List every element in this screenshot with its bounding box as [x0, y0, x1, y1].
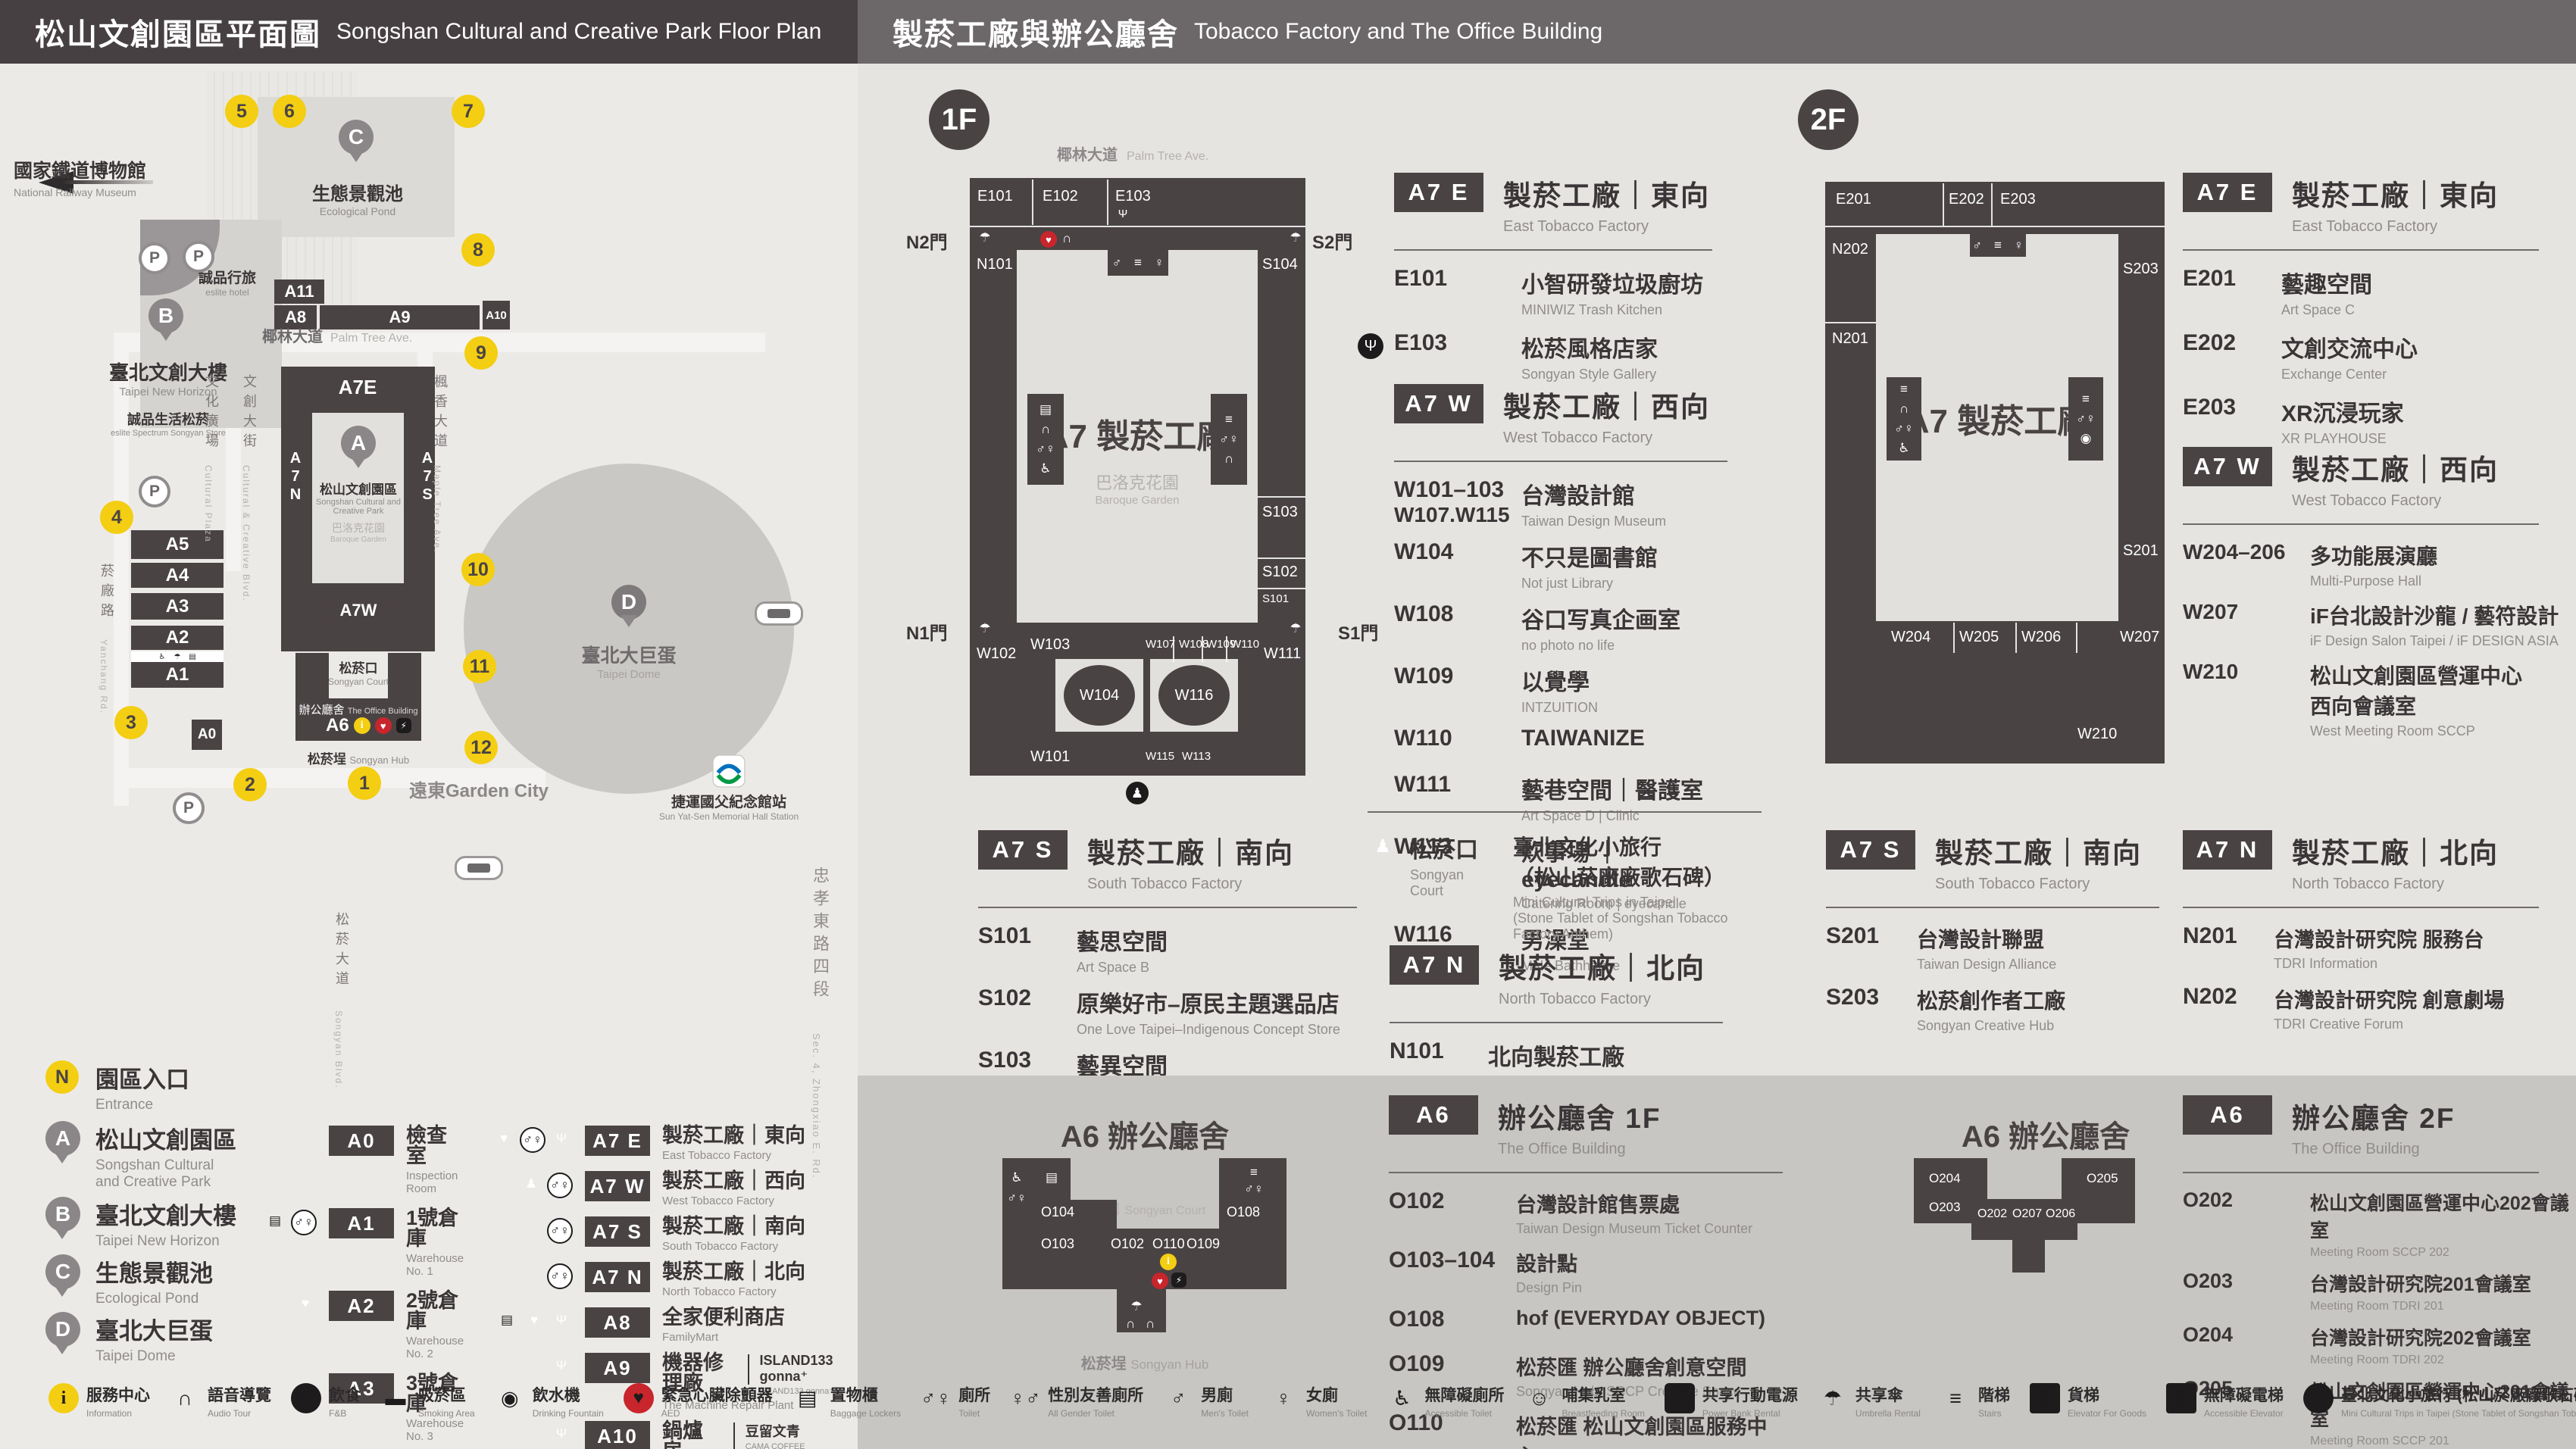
umbrella-icon — [1288, 621, 1303, 636]
room-s103: S103 — [1262, 504, 1298, 521]
section-badge: A6 — [1389, 1095, 1478, 1135]
facility-icon — [520, 1173, 542, 1195]
gate-n2: N2門 — [906, 227, 948, 254]
facility-icon — [921, 1383, 951, 1413]
trips-icon — [1126, 782, 1149, 804]
facility-icon — [1387, 1383, 1418, 1413]
facility-block-west — [1027, 394, 1064, 485]
parking-icon: P — [139, 242, 170, 274]
mrt-station-label: 捷運國父紀念館站 Sun Yat-Sen Memorial Hall Stati… — [659, 791, 799, 822]
section-badge: A7 W — [1394, 384, 1483, 423]
facility-icon — [1268, 1383, 1299, 1413]
room-w102: W102 — [977, 645, 1016, 663]
bldg-a4: A4 — [131, 563, 224, 588]
facility-legend-item: 吸菸區Smoking Area — [380, 1383, 475, 1419]
legend-item: A1 1號倉庫Warehouse No. 1 — [217, 1208, 467, 1278]
room-w205: W205 — [1959, 629, 1999, 646]
facility-icon — [547, 1218, 573, 1244]
room-o206: O206 — [2046, 1207, 2075, 1221]
room-s201: S201 — [2123, 542, 2159, 560]
building-code-badge: A10 — [585, 1421, 650, 1449]
legend-item: A10 鍋爐房 豆留文青CAMA COFFEE ROASTERS Boiler … — [473, 1421, 852, 1449]
pond-label: 生態景觀池 Ecological Pond — [312, 179, 403, 217]
facility-icon — [550, 1354, 573, 1377]
facility-legend-item: 服務中心Information — [48, 1383, 150, 1419]
a6-right-arm — [388, 653, 421, 698]
facility-icon — [1163, 1383, 1193, 1413]
aed-icon — [375, 717, 392, 734]
stairs-icon — [1246, 1165, 1261, 1180]
room-list-item: W101–103W107.W115 台灣設計館Taiwan Design Mus… — [1394, 477, 1727, 529]
plan-1f-center: A7 製菸工廠 巴洛克花園 Baroque Garden — [1045, 409, 1230, 507]
garden-city-label: 遠東Garden City — [409, 776, 549, 802]
room-w210: W210 — [2077, 726, 2117, 743]
floor-badge-1f: 1F — [929, 89, 989, 150]
section-a7e-2f: A7 E 製菸工廠｜東向East Tobacco Factory E201 藝趣… — [2183, 173, 2562, 459]
facility-icon — [291, 1383, 321, 1413]
facility-icon — [792, 1383, 823, 1413]
room-o205: O205 — [2087, 1171, 2118, 1186]
gate-notch-2f — [1970, 234, 2026, 257]
page-title-zh: 松山文創園區平面圖 — [35, 10, 321, 54]
audio-icon — [1059, 231, 1074, 246]
audio-icon — [1143, 1316, 1158, 1332]
room-list-item: S101 藝思空間Art Space B — [978, 923, 1357, 976]
room-list-item: W109 以覺學INTZUITION — [1394, 664, 1727, 716]
facility-icon — [170, 1383, 200, 1413]
room-o103: O103 — [1041, 1236, 1074, 1252]
fountain-icon — [2078, 431, 2093, 446]
room-list-item: W110 TAIWANIZE — [1394, 726, 1727, 762]
facility-icon — [380, 1383, 411, 1413]
power-bank-icon — [1171, 1273, 1186, 1288]
street-zhongxiao: 忠孝東路四段 — [808, 867, 832, 1003]
facility-icon — [1940, 1383, 1971, 1413]
room-o204: O204 — [1929, 1171, 1961, 1186]
room-o102: O102 — [1111, 1236, 1144, 1252]
facility-icon — [291, 1210, 317, 1235]
room-list-item: O103–104 設計點Design Pin — [1389, 1248, 1783, 1296]
bldg-a10: A10 — [483, 301, 510, 329]
entrance-3: 3 — [114, 706, 148, 739]
room-list-item: E103 松菸風格店家Songyan Style Gallery — [1394, 330, 1712, 383]
facility-icon — [550, 1422, 573, 1445]
page-title-en: Songshan Cultural and Creative Park Floo… — [336, 19, 821, 45]
dome-label: 臺北大巨蛋 Taipei Dome — [581, 641, 676, 681]
facility-legend-item: 語音導覽Audio Tour — [170, 1383, 271, 1419]
room-o202: O202 — [1977, 1207, 2007, 1221]
room-list-item: N202 台灣設計研究院 創意劇場TDRI Creative Forum — [2183, 984, 2576, 1032]
room-list-item: E202 文創交流中心Exchange Center — [2183, 330, 2562, 383]
street-plaza: 文化廣場 — [202, 374, 221, 453]
room-w115: W115 — [1146, 750, 1174, 763]
palm-ave-label-1f: 椰林大道 Palm Tree Ave. — [1057, 142, 1208, 164]
railway-museum-label: 國家鐵道博物館 National Railway Museum — [14, 156, 146, 198]
stairs-icon — [1990, 238, 2005, 253]
legend-pin-d: D 臺北大巨蛋Taipei Dome — [45, 1312, 213, 1365]
building-code-badge: A8 — [585, 1307, 650, 1338]
fnb-icon — [1115, 206, 1130, 221]
entrance-10: 10 — [461, 553, 495, 586]
men-icon — [1970, 238, 1984, 253]
header-right: 製菸工廠與辦公廳舍 Tobacco Factory and The Office… — [858, 0, 2576, 64]
facility-legend: 服務中心Information 語音導覽Audio Tour 飲食F&B 吸菸區… — [48, 1383, 2576, 1419]
building-code-badge: A9 — [585, 1353, 650, 1383]
room-w108: W108 — [1179, 638, 1208, 651]
toilet-icon — [2078, 411, 2093, 426]
section-a7n-2f: A7 N 製菸工廠｜北向North Tobacco Factory N201 台… — [2183, 830, 2576, 1045]
room-list-item: E101 小智研發垃圾廚坊MINIWIZ Trash Kitchen — [1394, 266, 1712, 318]
room-list-item: E203 XR沉浸玩家XR PLAYHOUSE — [2183, 395, 2562, 447]
accessible-icon — [158, 652, 167, 661]
room-o207: O207 — [2012, 1207, 2042, 1221]
building-code-badge: A1 — [329, 1208, 394, 1238]
stairs-icon — [2078, 392, 2093, 407]
facility-icon — [520, 1127, 546, 1153]
room-list-item: W207 iF台北設計沙龍 / 藝符設計iF Design Salon Taip… — [2183, 600, 2562, 649]
pin-a: A — [341, 426, 376, 461]
umbrella-icon — [977, 230, 993, 245]
toilet-icon — [1246, 1182, 1261, 1197]
facility-icon — [264, 1210, 286, 1232]
facility-icon — [495, 1383, 525, 1413]
bldg-a1: A1 — [131, 662, 224, 688]
a6-hub-label: 松菸埕 Songyan Hub — [1081, 1351, 1209, 1373]
room-list-item: O102 台灣設計館售票處Taiwan Design Museum Ticket… — [1389, 1188, 1783, 1237]
room-s101: S101 — [1262, 592, 1289, 605]
bldg-a7w-label: A7W — [322, 594, 395, 627]
toilet-icon — [1221, 432, 1236, 447]
park-map-panel: 國家鐵道博物館 National Railway Museum C 生態景觀池 … — [0, 64, 858, 1449]
bldg-a0: A0 — [192, 720, 222, 750]
parking-icon: P — [139, 476, 170, 507]
room-w107: W107 — [1146, 638, 1175, 651]
facility-icon — [547, 1263, 573, 1289]
street-yanchang: 菸廠路 — [97, 564, 117, 623]
street-songyan-blvd: 松菸大道 — [332, 912, 352, 991]
section-badge: A7 S — [1826, 830, 1915, 870]
section-badge: A7 E — [1394, 173, 1483, 212]
section-badge: A7 N — [2183, 830, 2272, 870]
floor-plan-poster: 松山文創園區平面圖 Songshan Cultural and Creative… — [0, 0, 2576, 1449]
facility-icon — [1818, 1383, 1848, 1413]
pin-b: B — [148, 298, 183, 333]
locker-icon — [1044, 1170, 1059, 1185]
room-w104: W104 — [1064, 665, 1135, 726]
bus-stop-icon — [455, 856, 503, 880]
accessible-icon — [1038, 461, 1053, 476]
gate-notch — [1108, 250, 1168, 276]
stairs-icon — [1896, 382, 1912, 397]
facility-icon — [523, 1309, 546, 1332]
room-o110: O110 — [1152, 1236, 1185, 1252]
section-a7w-2f: A7 W 製菸工廠｜西向West Tobacco Factory W204–20… — [2183, 447, 2562, 750]
umbrella-icon — [173, 652, 182, 661]
building-code-badge: A0 — [329, 1126, 394, 1156]
room-w111: W111 — [1264, 645, 1301, 663]
floor-badge-2f: 2F — [1798, 89, 1859, 150]
accessible-icon — [1009, 1170, 1024, 1185]
facility-icon — [547, 1173, 573, 1198]
facility-block-2f-east — [2068, 377, 2103, 461]
section-badge: A7 E — [2183, 173, 2272, 212]
bldg-a6-label: A6 — [326, 715, 349, 736]
room-list-item: O204 台灣設計研究院202會議室 Meeting Room TDRI 202 — [2183, 1323, 2576, 1367]
section-a7e-1f: A7 E 製菸工廠｜東向East Tobacco Factory E101 小智… — [1394, 173, 1712, 395]
stairs-icon — [1221, 412, 1236, 427]
locker-icon — [188, 652, 197, 661]
room-list-item: O202 松山文創園區營運中心202會議室 Meeting Room SCCP … — [2183, 1188, 2576, 1260]
facility-icon — [2030, 1383, 2060, 1413]
info-icon — [1160, 1254, 1177, 1270]
men-icon — [1109, 255, 1124, 270]
facility-icon — [1010, 1383, 1040, 1413]
toilet-icon — [1009, 1191, 1024, 1206]
park-name-label: 松山文創園區 Songshan Cultural and Creative Pa… — [316, 479, 401, 544]
songyan-hub-label: 松菸埕 Songyan Hub — [308, 748, 409, 767]
facility-legend-item: 性別友善廁所All Gender Toilet — [1010, 1383, 1143, 1419]
facility-legend-item: 貨梯Elevator For Goods — [2030, 1383, 2146, 1419]
entrance-9: 9 — [464, 336, 498, 370]
toilet-icon — [1038, 442, 1053, 457]
entrance-6: 6 — [273, 95, 306, 128]
section-badge: A6 — [2183, 1095, 2272, 1135]
legend-item: A2 2號倉庫Warehouse No. 2 — [217, 1291, 467, 1360]
section-badge: A7 N — [1390, 945, 1479, 985]
entrance-11: 11 — [463, 650, 496, 683]
facility-legend-item: 無障礙電梯Accessible Elevator — [2166, 1383, 2284, 1419]
legend-item: A0 檢查室Inspection Room — [217, 1126, 467, 1195]
section-title-zh: 製菸工廠與辦公廳舍 — [893, 10, 1179, 54]
room-e201: E201 — [1836, 191, 1871, 208]
bldg-a2: A2 — [131, 626, 224, 650]
section-badge: A7 W — [2183, 447, 2272, 486]
aed-icon — [1152, 1273, 1168, 1289]
a6-2f-stub — [2012, 1240, 2045, 1273]
bldg-a11: A11 — [274, 279, 324, 304]
facility-icon — [550, 1127, 573, 1150]
room-e203: E203 — [2000, 191, 2036, 208]
building-code-badge: A2 — [329, 1291, 394, 1321]
facility-icon — [48, 1383, 79, 1413]
facility-legend-item: 緊急心臟除顫器AED — [624, 1383, 773, 1419]
bldg-a3: A3 — [131, 593, 224, 620]
trips-icon — [1368, 831, 1398, 861]
gate-n1: N1門 — [906, 618, 948, 645]
room-e102: E102 — [1043, 188, 1078, 205]
songyan-court-note: 松菸口 Songyan Court 臺北文化小旅行 （松山菸廠廠歌石碑） Min… — [1368, 811, 1762, 942]
plan-2f-center: A7 製菸工廠 — [1905, 394, 2090, 442]
songyan-court-label: 松菸口 Songyan Court — [328, 657, 389, 687]
facility-legend-item: 廁所Toilet — [921, 1383, 990, 1419]
facility-icon — [1524, 1383, 1555, 1413]
info-icon — [354, 717, 370, 734]
room-list-item: E201 藝趣空間Art Space C — [2183, 266, 2562, 318]
room-list-item: O108 hof (EVERYDAY OBJECT) — [1389, 1307, 1783, 1341]
building-code-badge: A7 E — [585, 1126, 650, 1156]
section-title-en: Tobacco Factory and The Office Building — [1194, 19, 1602, 45]
a6-map-title-2f: A6 辦公廳舍 — [1962, 1112, 2130, 1156]
room-n201: N201 — [1832, 330, 1868, 348]
audio-icon — [1123, 1316, 1138, 1332]
building-code-badge: A7 W — [585, 1171, 650, 1201]
room-w110: W110 — [1230, 638, 1259, 651]
audio-icon — [1221, 451, 1236, 467]
facility-block-east — [1211, 394, 1247, 485]
room-list-item: W210 松山文創園區營運中心西向會議室West Meeting Room SC… — [2183, 660, 2562, 739]
facility-legend-item: 哺集乳室Breastfeeding Room — [1524, 1383, 1645, 1419]
facility-legend-item: 臺北文化小旅行 (松山菸廠廠歌石碑)Mini Cultural Trips in… — [2303, 1383, 2576, 1419]
accessible-icon — [1896, 441, 1912, 456]
umbrella-icon — [977, 621, 993, 636]
pin-c: C — [339, 120, 374, 155]
room-w207: W207 — [2120, 629, 2159, 646]
power-bank-icon — [396, 718, 411, 733]
entrance-2: 2 — [233, 768, 267, 801]
parking-icon: P — [183, 241, 214, 273]
stairs-icon — [1130, 255, 1146, 270]
room-list-item: O203 台灣設計研究院201會議室 Meeting Room TDRI 201 — [2183, 1269, 2576, 1313]
facility-block-2f-west — [1887, 377, 1921, 461]
locker-icon — [1038, 402, 1053, 417]
entrance-7: 7 — [452, 95, 485, 128]
legend-item: A7 W 製菸工廠｜西向 West Tobacco Factory — [473, 1171, 852, 1207]
room-s104: S104 — [1262, 256, 1298, 273]
room-o104: O104 — [1041, 1204, 1074, 1220]
room-e103: E103 — [1115, 188, 1151, 205]
facility-icon — [496, 1309, 518, 1332]
audio-icon — [1896, 401, 1912, 417]
facility-icon — [294, 1292, 317, 1315]
room-o108: O108 — [1227, 1204, 1260, 1220]
street-ccblvd: 文創大街 — [239, 374, 259, 453]
street-maple: 楓香大道 — [430, 374, 450, 453]
facility-icon — [624, 1383, 654, 1413]
facility-legend-item: 飲食F&B — [291, 1383, 361, 1419]
entrance-4: 4 — [100, 501, 133, 534]
legend-item: A8 全家便利商店 FamilyMart — [473, 1307, 852, 1344]
gate-s2: S2門 — [1312, 227, 1352, 254]
a6-map-title-1f: A6 辦公廳舍 — [1061, 1112, 1229, 1156]
palm-ave-label: 椰林大道 Palm Tree Ave. — [262, 324, 412, 346]
facility-icon — [2303, 1383, 2334, 1413]
facility-legend-item: 女廁Women's Toilet — [1268, 1383, 1368, 1419]
legend-pin-c: C 生態景觀池Ecological Pond — [45, 1254, 213, 1307]
a6-left-arm — [295, 653, 329, 698]
bldg-a7e-label: A7E — [339, 376, 377, 399]
toilet-icon — [1896, 421, 1912, 436]
room-list-item: S203 松菸創作者工廠Songyan Creative Hub — [1826, 985, 2159, 1034]
entrance-1: 1 — [348, 767, 381, 800]
entrance-5: 5 — [225, 95, 258, 128]
a1-icon-strip — [131, 651, 224, 662]
facility-legend-item: 共享行動電源Power Bank Rental — [1665, 1383, 1798, 1419]
gate-s1: S1門 — [1338, 618, 1378, 645]
legend-item: A7 S 製菸工廠｜南向 South Tobacco Factory — [473, 1216, 852, 1253]
room-w204: W204 — [1891, 629, 1930, 646]
entrance-8: 8 — [461, 233, 495, 267]
facility-legend-item: 飲水機Drinking Fountain — [495, 1383, 604, 1419]
women-icon — [2012, 238, 2026, 253]
building-code-badge: A7 N — [585, 1262, 650, 1292]
bus-stop-icon — [755, 601, 803, 626]
legend-entrance: N 園區入口Entrance — [45, 1060, 189, 1113]
room-s102: S102 — [1262, 564, 1298, 581]
section-badge: A7 S — [978, 830, 1068, 870]
room-o203: O203 — [1929, 1200, 1961, 1215]
room-w113: W113 — [1182, 750, 1211, 763]
room-w101: W101 — [1030, 748, 1070, 766]
legend-item: A7 E 製菸工廠｜東向 East Tobacco Factory — [473, 1126, 852, 1162]
room-list-item: N201 台灣設計研究院 服務台TDRI Information — [2183, 923, 2576, 972]
room-list-item: W204–206 多功能展演廳Multi-Purpose Hall — [2183, 540, 2562, 589]
umbrella-icon — [1129, 1299, 1144, 1314]
room-list-item: W108 谷口写真企画室no photo no life — [1394, 601, 1727, 654]
building-code-badge: A7 S — [585, 1216, 650, 1247]
pin-d: D — [611, 585, 646, 620]
facility-legend-item: 男廁Men's Toilet — [1163, 1383, 1249, 1419]
women-icon — [1152, 255, 1167, 270]
room-list-item: W104 不只是圖書館Not just Library — [1394, 539, 1727, 592]
legend-pin-b: B 臺北文創大樓Taipei New Horizon — [45, 1197, 236, 1250]
bldg-a6: 辦公廳舍 The Office Building A6 — [295, 698, 421, 741]
room-w103: W103 — [1030, 636, 1070, 654]
room-list-item: S102 原樂好市–原民主題選品店One Love Taipei–Indigen… — [978, 985, 1357, 1038]
header-left: 松山文創園區平面圖 Songshan Cultural and Creative… — [0, 0, 858, 64]
facility-legend-item: 階梯Stairs — [1940, 1383, 2010, 1419]
metro-logo — [712, 754, 746, 788]
facility-icon — [550, 1309, 573, 1332]
facility-icon — [2166, 1383, 2196, 1413]
facility-legend-item: 無障礙廁所Accessible Toilet — [1387, 1383, 1505, 1419]
facility-legend-item: 置物櫃Baggage Lockers — [792, 1383, 901, 1419]
audio-icon — [1038, 422, 1053, 437]
room-list-item: S201 台灣設計聯盟Taiwan Design Alliance — [1826, 923, 2159, 973]
room-s203: S203 — [2123, 261, 2159, 278]
room-n101: N101 — [977, 256, 1013, 273]
room-o109: O109 — [1186, 1236, 1220, 1252]
room-n202: N202 — [1832, 241, 1868, 258]
eslite-hotel-label: 誠品行旅 eslite hotel — [199, 267, 256, 298]
facility-icon — [1665, 1383, 1695, 1413]
section-a7s-2f: A7 S 製菸工廠｜南向South Tobacco Factory S201 台… — [1826, 830, 2159, 1046]
room-e202: E202 — [1949, 191, 1984, 208]
facility-legend-item: 共享傘Umbrella Rental — [1818, 1383, 1921, 1419]
room-e101: E101 — [977, 188, 1013, 205]
legend-pin-a: A 松山文創園區Songshan Culturaland Creative Pa… — [45, 1121, 236, 1191]
bldg-a7n-label: A7N — [286, 450, 304, 504]
umbrella-icon — [1288, 230, 1303, 245]
entrance-12: 12 — [464, 731, 498, 764]
fnb-icon — [1358, 333, 1383, 359]
facility-icon — [492, 1127, 515, 1150]
room-w116: W116 — [1158, 665, 1230, 726]
room-w206: W206 — [2021, 629, 2061, 646]
aed-icon — [1040, 231, 1057, 248]
parking-icon: P — [173, 792, 205, 824]
legend-item: A7 N 製菸工廠｜北向 North Tobacco Factory — [473, 1262, 852, 1298]
